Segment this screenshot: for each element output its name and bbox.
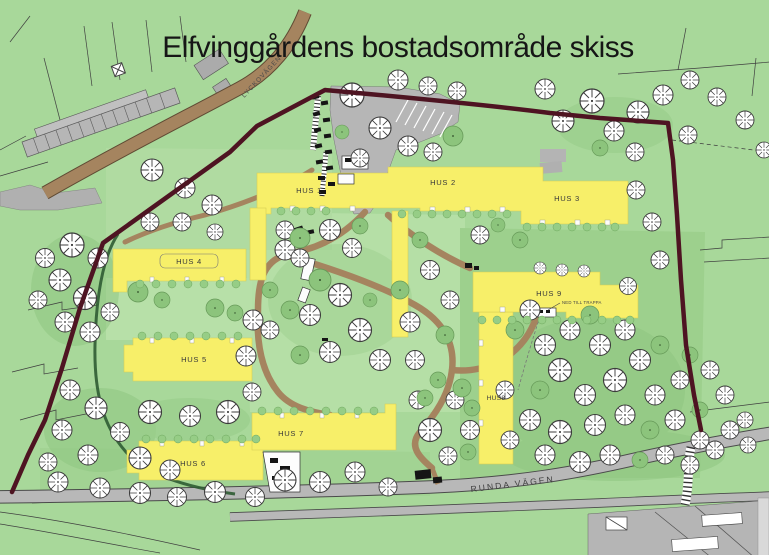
building-label-hus-1: HUS 1 xyxy=(296,186,322,195)
building-label-hus-3: HUS 3 xyxy=(554,194,580,203)
hus-9-note: NED TILL TRAPPA xyxy=(562,300,602,305)
building-label-hus-5: HUS 5 xyxy=(181,355,207,364)
building-label-hus-8: HUS8 xyxy=(487,395,506,402)
site-plan-map: Elfvinggårdens bostadsområde skiss LYCKO… xyxy=(0,0,769,555)
building-label-hus-9: HUS 9 xyxy=(536,289,562,298)
building-label-hus-4: HUS 4 xyxy=(176,257,202,266)
map-canvas: Elfvinggårdens bostadsområde skiss LYCKO… xyxy=(0,0,769,555)
building-label-hus-2: HUS 2 xyxy=(430,178,456,187)
building-label-hus-7: HUS 7 xyxy=(278,429,304,438)
page-title: Elfvinggårdens bostadsområde skiss xyxy=(162,31,634,64)
building-wing-west xyxy=(250,208,266,280)
building-label-hus-6: HUS 6 xyxy=(180,459,206,468)
